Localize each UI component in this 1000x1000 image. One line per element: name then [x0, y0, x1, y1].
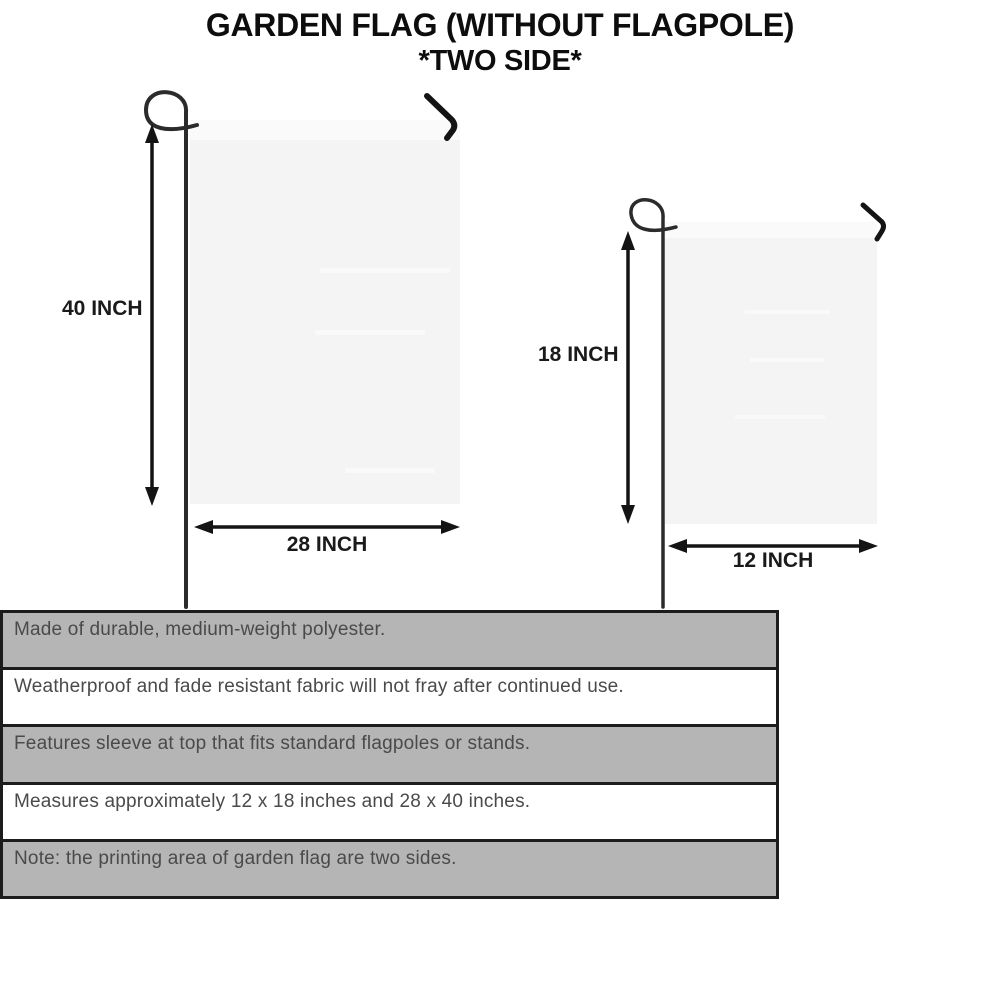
flagpole-small-icon: [631, 200, 676, 607]
page-title: GARDEN FLAG (WITHOUT FLAGPOLE) *TWO SIDE…: [0, 6, 1000, 78]
feature-row-note: Note: the printing area of garden flag a…: [3, 839, 776, 896]
flag-large: [190, 120, 460, 504]
title-line-2: *TWO SIDE*: [0, 44, 1000, 78]
flag-large-sleeve: [190, 120, 460, 140]
flagpole-large-icon: [146, 92, 197, 607]
flag-fold-streak: [735, 415, 825, 419]
arrowhead-down-icon: [145, 487, 159, 506]
pole-hook-large-icon: [427, 96, 454, 138]
arrowhead-left-icon: [668, 539, 687, 553]
feature-row-sleeve: Features sleeve at top that fits standar…: [3, 724, 776, 781]
feature-row-weatherproof: Weatherproof and fade resistant fabric w…: [3, 667, 776, 724]
arrowhead-up-icon: [621, 231, 635, 250]
width-label-large: 28 INCH: [287, 533, 368, 557]
flag-small-sleeve: [665, 222, 877, 238]
arrowhead-up-icon: [145, 124, 159, 143]
pole-hook-small-icon: [863, 205, 884, 239]
feature-row-measurements: Measures approximately 12 x 18 inches an…: [3, 782, 776, 839]
feature-table: Made of durable, medium-weight polyester…: [0, 610, 779, 899]
arrowhead-down-icon: [621, 505, 635, 524]
flag-fold-streak: [320, 268, 450, 273]
arrowhead-right-icon: [859, 539, 878, 553]
arrowhead-left-icon: [194, 520, 213, 534]
feature-row-material: Made of durable, medium-weight polyester…: [3, 613, 776, 667]
height-label-small: 18 INCH: [538, 343, 619, 367]
height-label-large: 40 INCH: [62, 297, 143, 321]
flag-fold-streak: [750, 358, 825, 362]
flag-fold-streak: [745, 310, 830, 314]
product-infographic: GARDEN FLAG (WITHOUT FLAGPOLE) *TWO SIDE…: [0, 0, 1000, 1000]
flag-fold-streak: [315, 330, 425, 335]
width-label-small: 12 INCH: [733, 549, 814, 573]
flag-small: [665, 222, 877, 524]
arrowhead-right-icon: [441, 520, 460, 534]
title-line-1: GARDEN FLAG (WITHOUT FLAGPOLE): [0, 6, 1000, 44]
flag-fold-streak: [345, 468, 435, 473]
